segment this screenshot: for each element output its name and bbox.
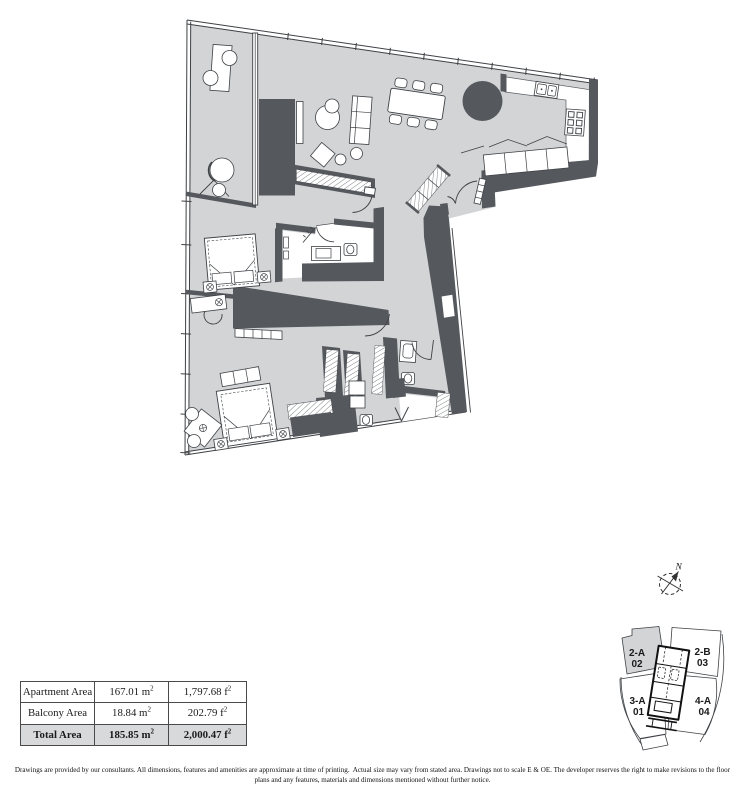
svg-text:N: N (675, 563, 683, 573)
svg-text:04: 04 (698, 707, 710, 718)
svg-text:03: 03 (697, 658, 709, 669)
svg-text:01: 01 (633, 707, 645, 718)
svg-text:3-A: 3-A (629, 696, 645, 707)
svg-text:4-A: 4-A (695, 696, 711, 707)
svg-text:2-A: 2-A (629, 648, 645, 659)
svg-text:2-B: 2-B (694, 647, 710, 658)
svg-text:02: 02 (631, 659, 643, 670)
